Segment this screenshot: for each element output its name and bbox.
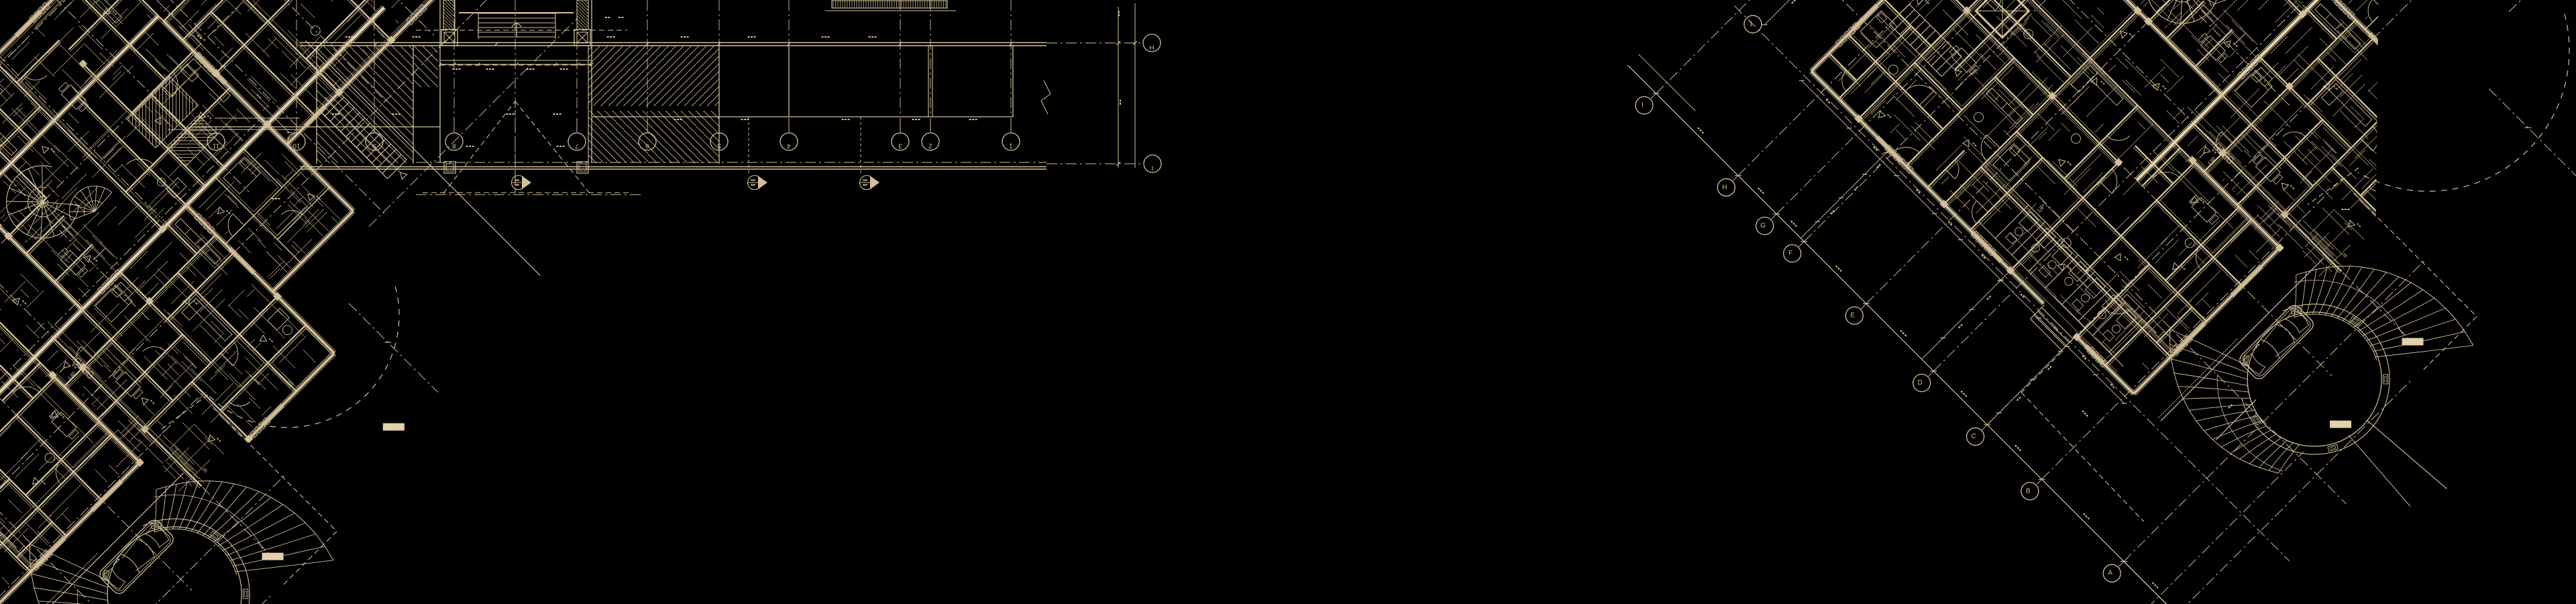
svg-text:1: 1	[1009, 142, 1013, 150]
svg-text:7: 7	[575, 142, 579, 150]
svg-text:I: I	[1152, 164, 1154, 172]
svg-text:8: 8	[452, 142, 456, 150]
svg-text:11: 11	[212, 142, 219, 150]
svg-text:9: 9	[372, 142, 376, 150]
svg-text:2: 2	[928, 142, 932, 150]
svg-text:4: 4	[787, 142, 791, 150]
svg-text:H: H	[1149, 44, 1154, 51]
svg-text:3: 3	[898, 142, 902, 150]
svg-text:5: 5	[717, 142, 721, 150]
svg-text:6: 6	[645, 142, 649, 150]
svg-text:10: 10	[292, 142, 301, 150]
